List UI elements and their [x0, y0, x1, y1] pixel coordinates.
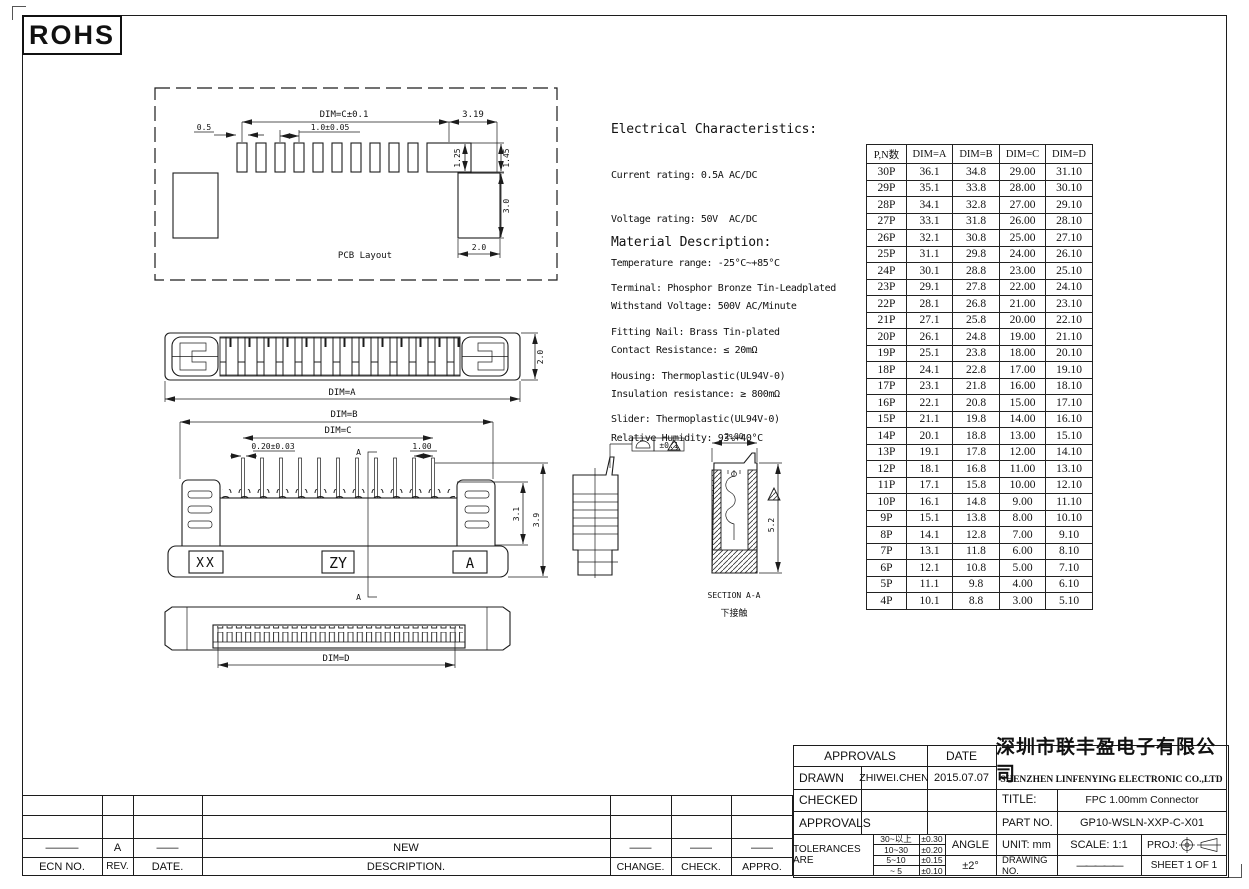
table-cell: 36.1 [907, 164, 953, 181]
table-cell: 25.00 [1000, 230, 1046, 247]
spec-line: Current rating: 0.5A AC/DC [611, 169, 817, 184]
table-cell: 12.10 [1046, 477, 1093, 494]
table-cell: 13.00 [1000, 428, 1046, 445]
table-cell: 5.00 [1000, 560, 1046, 577]
part-no-label: PART NO. [996, 811, 1062, 834]
table-row: 30P36.134.829.0031.10 [867, 164, 1093, 181]
table-cell: 15.8 [953, 477, 1000, 494]
table-cell: 14P [867, 428, 907, 445]
table-cell: 28.1 [907, 296, 953, 313]
part-no-value: GP10-WSLN-XXP-C-X01 [1057, 811, 1227, 834]
tolerances-label: TOLERANCES ARE [793, 834, 873, 876]
table-cell: 24.1 [907, 362, 953, 379]
table-cell: 4P [867, 593, 907, 610]
section-caption: SECTION A-A [708, 591, 761, 600]
dim-label-front-c: DIM=C [324, 426, 351, 436]
table-cell: 21.8 [953, 378, 1000, 395]
col-header-pin: P,N数 [867, 145, 907, 164]
table-cell: 10.00 [1000, 477, 1046, 494]
projection-cell: PROJ: [1141, 834, 1227, 855]
col-header-dim-d: DIM=D [1046, 145, 1093, 164]
table-row: 12P18.116.811.0013.10 [867, 461, 1093, 478]
table-row: 13P19.117.812.0014.10 [867, 444, 1093, 461]
approvals-header: APPROVALS [793, 745, 927, 766]
dim-label-30: 3.0 [502, 199, 511, 214]
angle-label: ANGLE [945, 834, 996, 855]
engineering-drawing-sheet: ROHS DIM=C±0.1 3.19 0.5 [0, 0, 1249, 889]
table-cell: 11.1 [907, 576, 953, 593]
dim-label-020: 0.20±0.03 [251, 442, 295, 451]
section-mark-top: A [356, 448, 361, 457]
angle-value: ±2° [945, 855, 996, 876]
entry-date: —— [133, 838, 202, 857]
date-header: DATE [927, 745, 996, 766]
table-cell: 6.10 [1046, 576, 1093, 593]
table-cell: 18.00 [1000, 345, 1046, 362]
table-row: 4P10.18.83.005.10 [867, 593, 1093, 610]
table-cell: 7.00 [1000, 527, 1046, 544]
rohs-label: ROHS [29, 20, 115, 51]
section-caption-cn: 下接触 [720, 607, 747, 619]
marking-a: A [466, 556, 475, 572]
table-cell: 27.00 [1000, 197, 1046, 214]
header-check: CHECK. [671, 857, 731, 876]
spec-line: Slider: Thermoplastic(UL94V-0) [611, 413, 836, 428]
dim-label-a: DIM=A [328, 388, 356, 398]
top-view-drawing: DIM=A 2.0 [160, 323, 560, 415]
dimension-table-header-row: P,N数 DIM=A DIM=B DIM=C DIM=D [867, 145, 1093, 164]
table-cell: 15P [867, 411, 907, 428]
table-cell: 27.1 [907, 312, 953, 329]
dimension-table: P,N数 DIM=A DIM=B DIM=C DIM=D 30P36.134.8… [866, 144, 1093, 610]
table-cell: 11.8 [953, 543, 1000, 560]
drawing-no-label: DRAWING NO. [996, 855, 1062, 876]
table-cell: 30.10 [1046, 180, 1093, 197]
table-cell: 29.1 [907, 279, 953, 296]
col-header-dim-c: DIM=C [1000, 145, 1046, 164]
table-cell: 11.00 [1000, 461, 1046, 478]
table-cell: 24.8 [953, 329, 1000, 346]
header-description: DESCRIPTION. [202, 857, 610, 876]
table-cell: 14.00 [1000, 411, 1046, 428]
table-cell: 19.8 [953, 411, 1000, 428]
table-row: 18P24.122.817.0019.10 [867, 362, 1093, 379]
table-row: 26P32.130.825.0027.10 [867, 230, 1093, 247]
table-cell: 31.8 [953, 213, 1000, 230]
entry-ecn: ——— [22, 838, 102, 857]
table-cell: 23P [867, 279, 907, 296]
table-cell: 14.8 [953, 494, 1000, 511]
title-value: FPC 1.00mm Connector [1057, 789, 1227, 811]
table-cell: 19P [867, 345, 907, 362]
dim-label-05: 0.5 [197, 123, 212, 132]
table-cell: 27.10 [1046, 230, 1093, 247]
table-cell: 27P [867, 213, 907, 230]
col-header-dim-a: DIM=A [907, 145, 953, 164]
table-cell: 31.10 [1046, 164, 1093, 181]
table-cell: 13.8 [953, 510, 1000, 527]
company-name-cn: 深圳市联丰盈电子有限公司 [996, 747, 1227, 771]
approvals-label: APPROVALS [793, 811, 867, 834]
table-cell: 10.10 [1046, 510, 1093, 527]
entry-rev: A [102, 838, 133, 857]
table-cell: 24.00 [1000, 246, 1046, 263]
table-cell: 34.1 [907, 197, 953, 214]
table-cell: 28.8 [953, 263, 1000, 280]
scale-label: SCALE: 1:1 [1057, 834, 1141, 855]
projection-symbol-icon [1179, 837, 1221, 853]
unit-label: UNIT: mm [996, 834, 1062, 855]
table-cell: 13P [867, 444, 907, 461]
table-cell: 14.10 [1046, 444, 1093, 461]
table-cell: 16.10 [1046, 411, 1093, 428]
spec-line: Housing: Thermoplastic(UL94V-0) [611, 370, 836, 385]
entry-appro: —— [731, 838, 793, 857]
entry-check: —— [671, 838, 731, 857]
dim-label-top-20: 2.0 [536, 350, 545, 365]
drawn-date: 2015.07.07 [927, 766, 996, 789]
table-row: 9P15.113.88.0010.10 [867, 510, 1093, 527]
table-cell: 22.1 [907, 395, 953, 412]
table-cell: 10.1 [907, 593, 953, 610]
table-cell: 23.00 [1000, 263, 1046, 280]
table-cell: 16P [867, 395, 907, 412]
table-cell: 12P [867, 461, 907, 478]
checked-label: CHECKED [793, 789, 867, 811]
table-cell: 12.1 [907, 560, 953, 577]
tol-range-4: ~ 5 [873, 865, 919, 876]
table-cell: 23.1 [907, 378, 953, 395]
table-cell: 24.10 [1046, 279, 1093, 296]
table-cell: 3.00 [1000, 593, 1046, 610]
dim-label-319: 3.19 [462, 110, 484, 120]
table-cell: 17P [867, 378, 907, 395]
table-cell: 18.8 [953, 428, 1000, 445]
entry-description: NEW [202, 838, 610, 857]
table-cell: 26.1 [907, 329, 953, 346]
dim-label-c: DIM=C±0.1 [320, 110, 369, 120]
table-cell: 9.10 [1046, 527, 1093, 544]
tol-range-2: 10~30 [873, 844, 919, 855]
table-cell: 6.00 [1000, 543, 1046, 560]
material-description: Material Description: Terminal: Phosphor… [611, 207, 836, 457]
table-cell: 24P [867, 263, 907, 280]
table-cell: 17.00 [1000, 362, 1046, 379]
table-cell: 16.1 [907, 494, 953, 511]
table-cell: 14.1 [907, 527, 953, 544]
table-row: 29P35.133.828.0030.10 [867, 180, 1093, 197]
proj-label: PROJ: [1147, 839, 1178, 851]
table-cell: 15.10 [1046, 428, 1093, 445]
dim-label-10: 1.0±0.05 [311, 123, 350, 132]
table-cell: 23.8 [953, 345, 1000, 362]
table-cell: 21.1 [907, 411, 953, 428]
tol-range-1: 30~以上 [873, 834, 919, 844]
table-cell: 19.00 [1000, 329, 1046, 346]
material-title: Material Description: [611, 236, 836, 251]
table-cell: 25P [867, 246, 907, 263]
table-cell: 23.10 [1046, 296, 1093, 313]
table-cell: 32.1 [907, 230, 953, 247]
table-row: 6P12.110.85.007.10 [867, 560, 1093, 577]
table-cell: 21.10 [1046, 329, 1093, 346]
table-cell: 22.10 [1046, 312, 1093, 329]
dim-label-d: DIM=D [322, 654, 349, 664]
tol-value-4: ±0.10 [919, 865, 945, 876]
header-appro: APPRO. [731, 857, 793, 876]
header-date: DATE. [133, 857, 202, 876]
table-row: 10P16.114.89.0011.10 [867, 494, 1093, 511]
table-row: 24P30.128.823.0025.10 [867, 263, 1093, 280]
table-row: 23P29.127.822.0024.10 [867, 279, 1093, 296]
table-cell: 19.1 [907, 444, 953, 461]
table-cell: 20.00 [1000, 312, 1046, 329]
dim-label-100: 1.00 [412, 442, 431, 451]
dim-label-31: 3.1 [512, 507, 521, 522]
table-cell: 8.00 [1000, 510, 1046, 527]
title-label: TITLE: [996, 789, 1062, 811]
table-cell: 29.10 [1046, 197, 1093, 214]
drawn-label: DRAWN [793, 766, 867, 789]
table-cell: 30P [867, 164, 907, 181]
electrical-title: Electrical Characteristics: [611, 123, 817, 138]
table-cell: 31.1 [907, 246, 953, 263]
dim-label-145: 1.45 [502, 148, 511, 167]
table-cell: 17.1 [907, 477, 953, 494]
table-cell: 15.00 [1000, 395, 1046, 412]
spec-line: Terminal: Phosphor Bronze Tin-Leadplated [611, 282, 836, 297]
tol-value-1: ±0.30 [919, 834, 945, 844]
company-name-en: SHENZHEN LINFENYING ELECTRONIC CO.,LTD [996, 771, 1227, 788]
drawn-name: ZHIWEI.CHEN [861, 766, 927, 789]
table-row: 5P11.19.84.006.10 [867, 576, 1093, 593]
table-cell: 13.1 [907, 543, 953, 560]
table-cell: 7P [867, 543, 907, 560]
drawing-no-value: ————— [1057, 855, 1141, 876]
pcb-layout-caption: PCB Layout [338, 251, 392, 261]
table-row: 21P27.125.820.0022.10 [867, 312, 1093, 329]
table-cell: 11.10 [1046, 494, 1093, 511]
dimension-table-body: 30P36.134.829.0031.1029P35.133.828.0030.… [867, 164, 1093, 610]
table-cell: 6P [867, 560, 907, 577]
table-cell: 8.8 [953, 593, 1000, 610]
table-row: 20P26.124.819.0021.10 [867, 329, 1093, 346]
header-change: CHANGE. [610, 857, 671, 876]
tol-value-3: ±0.15 [919, 855, 945, 865]
table-cell: 25.8 [953, 312, 1000, 329]
table-cell: 34.8 [953, 164, 1000, 181]
table-cell: 32.8 [953, 197, 1000, 214]
table-row: 11P17.115.810.0012.10 [867, 477, 1093, 494]
table-cell: 9.8 [953, 576, 1000, 593]
table-cell: 19.10 [1046, 362, 1093, 379]
corner-mark-bottom-right [1228, 864, 1242, 878]
table-cell: 20.1 [907, 428, 953, 445]
table-cell: 10P [867, 494, 907, 511]
table-cell: 29.00 [1000, 164, 1046, 181]
table-cell: 11P [867, 477, 907, 494]
table-cell: 29.8 [953, 246, 1000, 263]
table-row: 25P31.129.824.0026.10 [867, 246, 1093, 263]
table-cell: 26P [867, 230, 907, 247]
table-cell: 28P [867, 197, 907, 214]
table-row: 14P20.118.813.0015.10 [867, 428, 1093, 445]
table-cell: 15.1 [907, 510, 953, 527]
dim-label-20: 2.0 [472, 243, 487, 252]
table-row: 28P34.132.827.0029.10 [867, 197, 1093, 214]
table-cell: 35.1 [907, 180, 953, 197]
table-cell: 20.8 [953, 395, 1000, 412]
dim-label-125: 1.25 [453, 148, 462, 167]
tol-range-3: 5~10 [873, 855, 919, 865]
table-row: 16P22.120.815.0017.10 [867, 395, 1093, 412]
front-view-drawing: DIM=B DIM=C 0.20±0.03 1.00 [160, 403, 570, 608]
table-row: 15P21.119.814.0016.10 [867, 411, 1093, 428]
table-cell: 20.10 [1046, 345, 1093, 362]
table-cell: 4.00 [1000, 576, 1046, 593]
table-cell: 17.10 [1046, 395, 1093, 412]
table-cell: 30.1 [907, 263, 953, 280]
table-cell: 21P [867, 312, 907, 329]
marking-xx: XX [196, 556, 216, 571]
table-cell: 8.10 [1046, 543, 1093, 560]
header-ecn-no: ECN NO. [22, 857, 102, 876]
dim-label-52: 5.2 [767, 518, 776, 533]
table-row: 27P33.131.826.0028.10 [867, 213, 1093, 230]
table-cell: 28.00 [1000, 180, 1046, 197]
table-cell: 25.1 [907, 345, 953, 362]
table-row: 19P25.123.818.0020.10 [867, 345, 1093, 362]
table-cell: 27.8 [953, 279, 1000, 296]
table-row: 7P13.111.86.008.10 [867, 543, 1093, 560]
table-cell: 9P [867, 510, 907, 527]
table-cell: 18.10 [1046, 378, 1093, 395]
table-cell: 26.8 [953, 296, 1000, 313]
table-cell: 22.8 [953, 362, 1000, 379]
table-cell: 33.1 [907, 213, 953, 230]
table-cell: 9.00 [1000, 494, 1046, 511]
tol-value-2: ±0.20 [919, 844, 945, 855]
table-cell: 5P [867, 576, 907, 593]
table-cell: 22P [867, 296, 907, 313]
table-cell: 26.00 [1000, 213, 1046, 230]
table-cell: 8P [867, 527, 907, 544]
table-cell: 29P [867, 180, 907, 197]
table-row: 17P23.121.816.0018.10 [867, 378, 1093, 395]
table-cell: 12.8 [953, 527, 1000, 544]
table-cell: 33.8 [953, 180, 1000, 197]
table-cell: 25.10 [1046, 263, 1093, 280]
table-cell: 5.10 [1046, 593, 1093, 610]
entry-change: —— [610, 838, 671, 857]
sheet-label: SHEET 1 OF 1 [1141, 855, 1227, 876]
table-cell: 20P [867, 329, 907, 346]
table-row: 22P28.126.821.0023.10 [867, 296, 1093, 313]
table-cell: 26.10 [1046, 246, 1093, 263]
dim-label-b: DIM=B [330, 410, 357, 420]
spec-line: Fitting Nail: Brass Tin-plated [611, 326, 836, 341]
table-cell: 10.8 [953, 560, 1000, 577]
table-cell: 18P [867, 362, 907, 379]
table-cell: 16.00 [1000, 378, 1046, 395]
header-rev: REV. [102, 857, 133, 876]
table-cell: 21.00 [1000, 296, 1046, 313]
table-cell: 16.8 [953, 461, 1000, 478]
table-cell: 18.1 [907, 461, 953, 478]
table-cell: 30.8 [953, 230, 1000, 247]
dim-label-39: 3.9 [532, 513, 541, 528]
marking-zy: ZY [329, 554, 347, 572]
table-cell: 17.8 [953, 444, 1000, 461]
table-cell: 28.10 [1046, 213, 1093, 230]
col-header-dim-b: DIM=B [953, 145, 1000, 164]
table-cell: 13.10 [1046, 461, 1093, 478]
pcb-layout-drawing: DIM=C±0.1 3.19 0.5 1.0±0.05 1.25 1.45 3.… [152, 86, 562, 286]
rohs-badge: ROHS [22, 15, 122, 55]
table-cell: 22.00 [1000, 279, 1046, 296]
bottom-view-drawing: DIM=D [160, 598, 560, 678]
table-cell: 12.00 [1000, 444, 1046, 461]
table-cell: 7.10 [1046, 560, 1093, 577]
table-row: 8P14.112.87.009.10 [867, 527, 1093, 544]
